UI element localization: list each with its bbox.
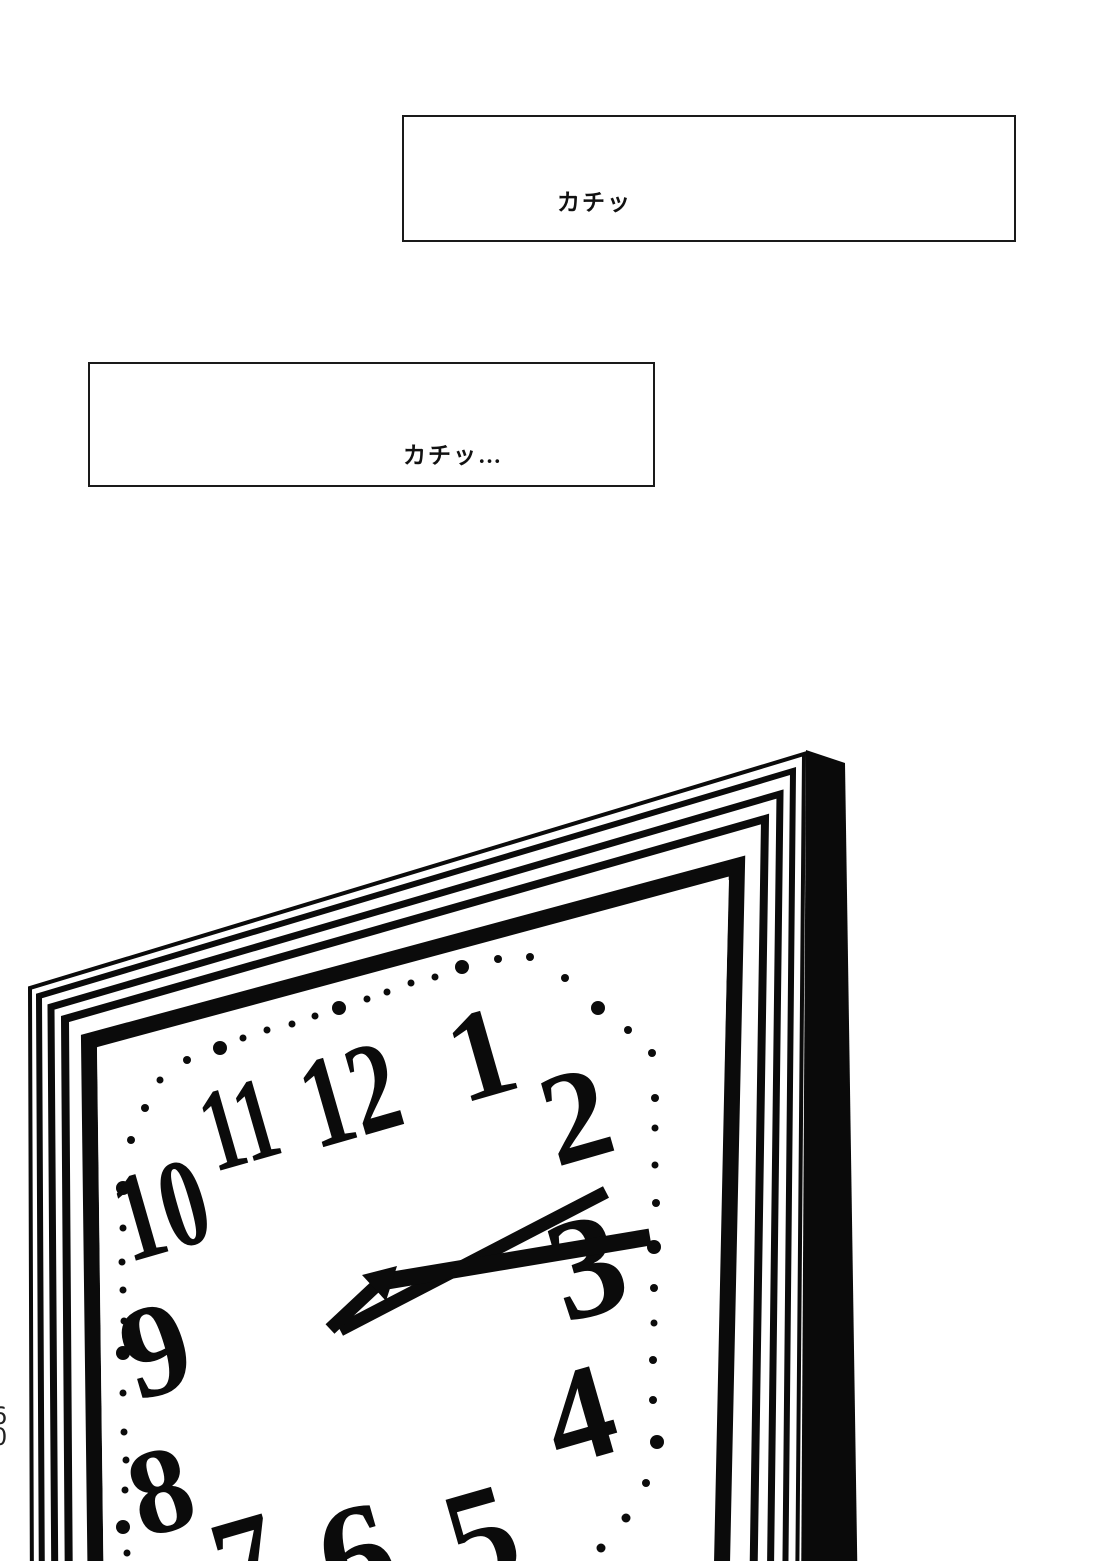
- minute-dot: [119, 1259, 126, 1266]
- minute-dot: [494, 955, 502, 963]
- minute-dot: [364, 996, 371, 1003]
- minute-dot: [597, 1544, 606, 1553]
- minute-dot: [240, 1035, 247, 1042]
- minute-dot: [432, 974, 439, 981]
- minute-dot: [652, 1162, 659, 1169]
- minute-dot: [264, 1027, 271, 1034]
- minute-dot: [624, 1026, 632, 1034]
- minute-dot: [642, 1479, 650, 1487]
- minute-dot: [651, 1320, 658, 1327]
- manga-page: カチッ カチッ… 6 0: [0, 0, 1100, 1561]
- minute-dot: [649, 1356, 657, 1364]
- minute-dot: [622, 1514, 631, 1523]
- minute-dot: [157, 1077, 164, 1084]
- clock-side-panel: [801, 750, 858, 1561]
- minute-dot: [408, 980, 415, 987]
- hour-dot: [455, 960, 469, 974]
- hour-dot: [591, 1001, 605, 1015]
- minute-dot: [141, 1104, 149, 1112]
- minute-dot: [649, 1396, 657, 1404]
- minute-dot: [120, 1390, 127, 1397]
- minute-dot: [526, 953, 534, 961]
- hour-dot: [116, 1520, 130, 1534]
- minute-dot: [183, 1056, 191, 1064]
- minute-dot: [648, 1049, 656, 1057]
- minute-dot: [124, 1550, 131, 1557]
- minute-dot: [650, 1284, 658, 1292]
- minute-dot: [312, 1013, 319, 1020]
- minute-dot: [384, 989, 391, 996]
- minute-dot: [652, 1125, 659, 1132]
- hour-dot: [650, 1435, 664, 1449]
- minute-dot: [561, 974, 569, 982]
- hour-dot: [213, 1041, 227, 1055]
- minute-dot: [651, 1094, 659, 1102]
- minute-dot: [289, 1021, 296, 1028]
- wall-clock-illustration: 1 2 3 4 5 6 7 8 9 10 11 12: [0, 0, 1100, 1561]
- minute-dot: [127, 1136, 135, 1144]
- minute-dot: [652, 1199, 660, 1207]
- hour-dot: [332, 1001, 346, 1015]
